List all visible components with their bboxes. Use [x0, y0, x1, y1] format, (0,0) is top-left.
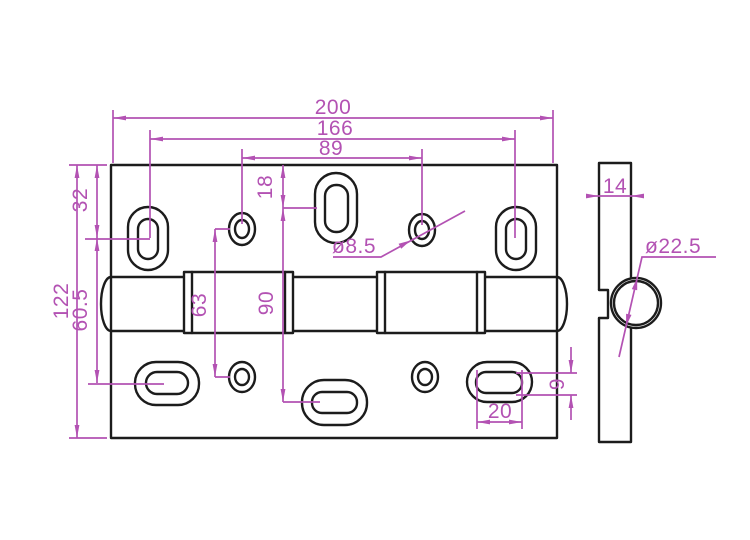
knuckle-segment-2 [377, 272, 485, 333]
barrel-band [111, 277, 557, 331]
technical-drawing-canvas: 200 166 89 122 32 60.5 [0, 0, 750, 540]
side-view [595, 163, 661, 442]
dim-label-60-5: 60.5 [69, 289, 92, 332]
barrel-cap-left [101, 277, 111, 331]
slot-top-right-outer [496, 207, 536, 270]
dim-label-dia-8-5: ø8.5 [332, 235, 376, 258]
bottom-row-holes [135, 362, 532, 425]
barrel-cap-right [557, 277, 567, 331]
dim-label-18: 18 [254, 175, 277, 199]
dim-label-200: 200 [315, 96, 352, 119]
hinge-drawing: 200 166 89 122 32 60.5 [0, 0, 750, 540]
dim-label-32: 32 [69, 188, 92, 212]
dim-hole-diameter: ø8.5 [332, 211, 465, 258]
hole-bottom-2-inner [418, 369, 432, 385]
dim-slot-height: 9 [516, 347, 577, 420]
dim-label-dia-22-5: ø22.5 [645, 235, 701, 258]
hole-bottom-1-inner [235, 369, 249, 385]
hole-bottom-2-outer [412, 362, 438, 392]
dim-label-14: 14 [603, 175, 627, 198]
slot-bottom-right-inner [476, 372, 522, 393]
notch-mask [595, 290, 608, 318]
slot-top-center-inner [325, 185, 348, 232]
dim-label-90: 90 [255, 291, 278, 315]
front-view [101, 165, 567, 438]
dim-leaf-thickness: 14 [588, 175, 642, 198]
hole-bottom-1-outer [229, 362, 255, 392]
dim-label-20: 20 [488, 400, 512, 423]
arrowhead [399, 241, 411, 249]
dim-label-9: 9 [546, 378, 569, 390]
dim-knuckle-diameter: ø22.5 [619, 235, 716, 357]
dim-label-89: 89 [319, 137, 343, 160]
slot-bottom-left-inner [146, 372, 188, 394]
dim-slot-length: 20 [477, 370, 522, 429]
dim-outer-slot-span: 166 [150, 117, 515, 238]
slot-top-right-inner [506, 219, 526, 259]
dim-center-slot-offset: 18 [254, 165, 283, 208]
dim-label-63: 63 [188, 293, 211, 317]
